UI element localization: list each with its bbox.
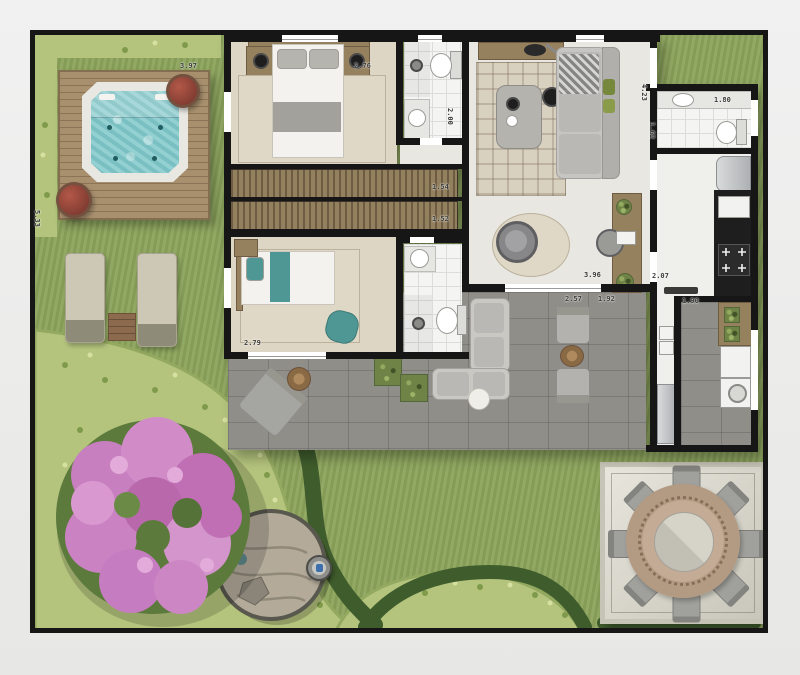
jet	[158, 125, 163, 130]
terrace-plant	[374, 358, 402, 386]
table-lamp	[349, 53, 365, 69]
wall-left	[224, 35, 231, 359]
sliding-door	[505, 284, 601, 292]
wall-service-top	[646, 84, 758, 91]
burner	[722, 264, 730, 272]
wardrobe-strip	[230, 169, 458, 199]
hedge-strip-top	[35, 35, 221, 58]
window	[282, 35, 338, 42]
laundry-tub	[720, 346, 751, 378]
window	[751, 330, 758, 410]
wall-laundry-divider	[674, 296, 681, 445]
hot-tub-water	[91, 91, 179, 173]
hedge-strip-left	[35, 35, 57, 237]
wall-bath2-bottom	[396, 352, 469, 359]
coffee-table	[496, 85, 542, 149]
window	[650, 160, 657, 190]
sink-basin	[410, 249, 429, 268]
lounger-side-table	[108, 313, 136, 341]
door-opening	[420, 138, 442, 145]
headrest	[99, 94, 115, 100]
toilet-tank	[736, 119, 747, 145]
sofa	[556, 47, 606, 179]
wall-bedroom2-bath2	[396, 237, 403, 359]
window	[224, 92, 231, 132]
window	[576, 35, 604, 42]
shelf-plant	[724, 326, 740, 342]
burner	[722, 248, 730, 256]
washer-door	[728, 384, 747, 403]
shelf-plant	[724, 307, 740, 323]
terrace-plant	[400, 374, 428, 402]
desk-plant	[616, 199, 632, 215]
wall-cabinet-icon	[659, 326, 674, 340]
outdoor-coffee-table	[468, 388, 490, 410]
window	[248, 352, 326, 359]
wall-bath3-bottom	[657, 148, 751, 154]
sink-basin	[408, 109, 426, 127]
window	[650, 48, 657, 88]
lounger-foot	[138, 324, 176, 346]
blanket	[273, 102, 341, 132]
kitchen-sink-counter	[716, 156, 751, 192]
window	[224, 268, 231, 308]
pillow	[277, 49, 307, 69]
terrace-round-table	[560, 345, 584, 367]
single-bed	[241, 251, 335, 305]
flower-planter	[56, 182, 92, 218]
jet	[113, 156, 118, 161]
plaid-throw	[559, 54, 599, 94]
wall-laundry-top	[681, 296, 751, 302]
garden-plot	[30, 30, 768, 633]
closet-wall	[224, 229, 469, 237]
service-sink-basin	[672, 93, 694, 107]
shower-head-icon	[412, 317, 425, 330]
wardrobe-strip	[230, 201, 458, 231]
burner	[738, 264, 746, 272]
flower-planter	[166, 74, 200, 108]
sun-lounger	[65, 253, 105, 343]
window	[751, 100, 758, 136]
double-bed	[272, 44, 344, 158]
plant-shelf	[234, 239, 258, 257]
wall-living-left	[462, 35, 469, 291]
table-decor	[506, 97, 520, 111]
window	[650, 252, 657, 282]
terrace-chair	[556, 306, 590, 344]
washing-machine	[720, 378, 751, 408]
microwave	[718, 196, 750, 218]
shower-head-icon	[410, 59, 423, 72]
burner	[738, 248, 746, 256]
chair-back	[557, 395, 589, 403]
pillow	[309, 49, 339, 69]
terrace-chair	[556, 368, 590, 404]
laundry-shelf	[718, 302, 753, 346]
sofa-cushion	[474, 303, 504, 333]
wall-service-left	[650, 292, 657, 452]
sofa-cushion	[559, 134, 601, 174]
laptop	[616, 231, 636, 245]
jet	[152, 156, 157, 161]
lounger-foot	[66, 320, 104, 342]
outdoor-dining-patio	[600, 462, 766, 624]
stove	[718, 244, 750, 276]
teal-blanket	[270, 252, 290, 302]
toilet-bowl	[436, 307, 458, 334]
outdoor-sofa-vertical	[470, 298, 510, 372]
green-pillow	[603, 79, 615, 95]
teal-pillow	[246, 257, 264, 281]
sun-lounger	[137, 253, 177, 347]
dining-chair	[736, 530, 765, 558]
garden-grill	[306, 555, 332, 581]
floor-plan-canvas: 3.975.332.762.001.541.522.793.962.072.57…	[0, 0, 800, 675]
toilet-bowl	[430, 53, 452, 78]
toilet-tank	[457, 305, 467, 335]
chair-back	[557, 307, 589, 315]
sofa-cushion	[474, 337, 504, 367]
round-dining-table	[626, 484, 740, 598]
wall-service-bottom	[646, 445, 758, 452]
table-top	[654, 512, 714, 572]
terrace-side-table	[287, 367, 311, 391]
sofa-backrest	[602, 47, 620, 179]
toilet-bowl	[716, 121, 737, 144]
window	[418, 35, 442, 42]
kitchen-mat	[664, 287, 698, 294]
door-opening	[410, 237, 434, 243]
wall-cabinet-icon	[659, 341, 674, 355]
apartment-unit	[224, 35, 764, 455]
table-lamp	[253, 53, 269, 69]
sideboard-decor	[524, 44, 546, 56]
sofa-cushion	[559, 92, 601, 132]
table-decor	[506, 115, 518, 127]
grill-detail	[316, 564, 323, 572]
wall-bedroom1-bath1	[396, 35, 403, 145]
armchair-seat	[505, 230, 527, 252]
green-pillow	[603, 99, 615, 113]
sofa-cushion	[437, 372, 469, 396]
jet	[107, 125, 112, 130]
